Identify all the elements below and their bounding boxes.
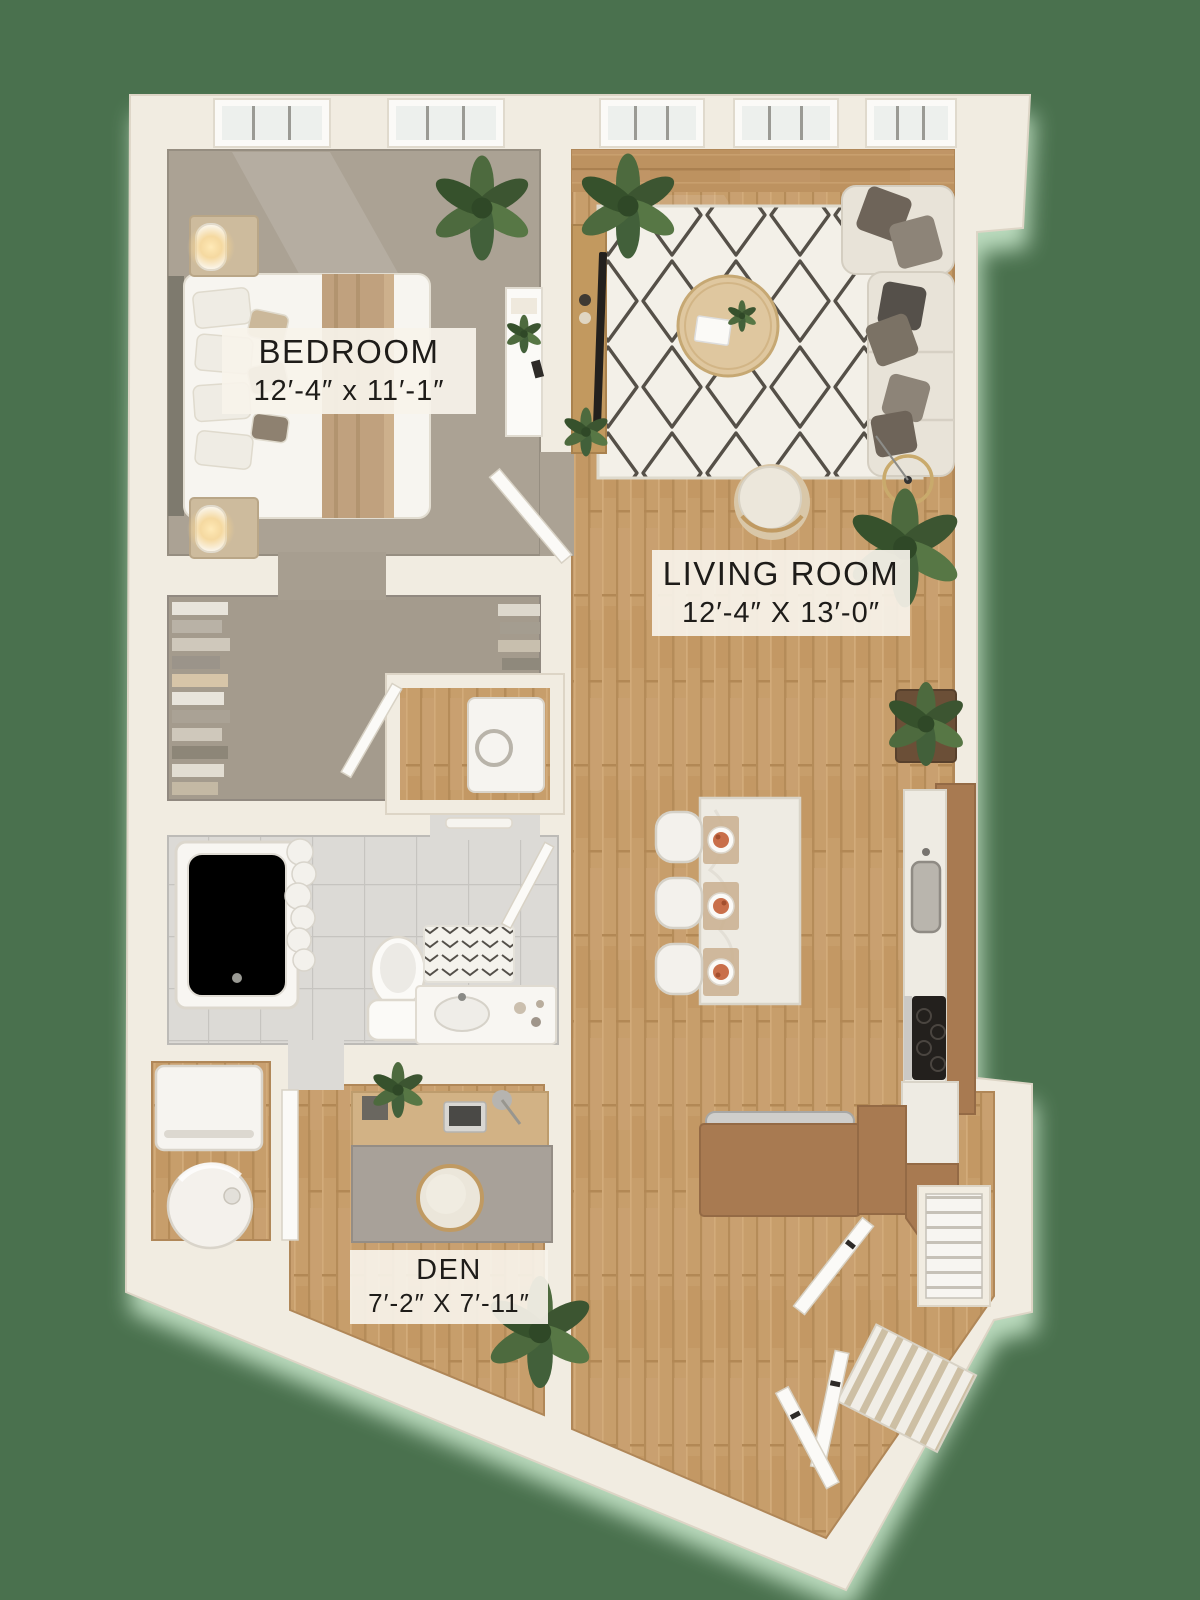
den-chair: [418, 1166, 482, 1230]
room-label-den: DEN 7′-2″ X 7′-11″: [350, 1250, 548, 1324]
magazine: [694, 316, 731, 345]
den-pocket-door: [282, 1090, 298, 1240]
living-window-2: [734, 99, 838, 147]
living-room-dimensions: 12′-4″ X 13′-0″: [682, 597, 880, 630]
nightstand-top: [187, 216, 258, 276]
place-setting-3: [703, 948, 739, 996]
place-setting-1: [703, 816, 739, 864]
living-window-1: [600, 99, 704, 147]
floor-plan-image: BEDROOM 12′-4″ x 11′-1″ LIVING ROOM 12′-…: [0, 0, 1200, 1600]
den-dimensions: 7′-2″ X 7′-11″: [368, 1288, 530, 1319]
bedroom-dresser: [505, 288, 544, 436]
sink: [435, 997, 489, 1031]
kitchen-faucet: [922, 848, 930, 856]
nightstand-bottom: [187, 498, 258, 558]
towel-bar: [446, 818, 512, 828]
bath-den-opening: [288, 1040, 344, 1090]
lamp-glow: [187, 505, 235, 553]
wire-shelf-closet: [918, 1186, 990, 1306]
bedroom-dimensions: 12′-4″ x 11′-1″: [254, 375, 445, 408]
place-setting-2: [703, 882, 739, 930]
faucet: [458, 993, 466, 1001]
wall-planter: [885, 682, 967, 766]
counter-corner: [902, 1082, 958, 1166]
floor-plan-canvas: [0, 0, 1200, 1600]
coffee-table: [678, 276, 778, 376]
bed-headboard: [168, 276, 184, 516]
den-name: DEN: [416, 1255, 482, 1287]
hanging-clothes-left: [172, 602, 230, 795]
laptop: [444, 1102, 486, 1132]
kitchen-island: [700, 798, 800, 1004]
kitchen-sink: [912, 862, 940, 932]
bathroom-vanity: [416, 986, 556, 1044]
living-window-3: [866, 99, 956, 147]
lamp-glow: [187, 223, 235, 271]
accent-chair: [734, 464, 810, 540]
room-label-bedroom: BEDROOM 12′-4″ x 11′-1″: [222, 328, 476, 414]
bath-mat: [424, 926, 514, 982]
bedroom-window-2: [388, 99, 504, 147]
kitchen-counter-right: [904, 784, 975, 1114]
living-room-name: LIVING ROOM: [663, 556, 900, 592]
dryer: [468, 698, 544, 792]
room-label-living-room: LIVING ROOM 12′-4″ X 13′-0″: [652, 550, 910, 636]
bar-stools: [656, 812, 702, 994]
bedroom-window-1: [214, 99, 330, 147]
tub-drain: [232, 973, 242, 983]
bedroom-name: BEDROOM: [258, 334, 439, 370]
bedroom-closet-opening: [278, 552, 386, 600]
